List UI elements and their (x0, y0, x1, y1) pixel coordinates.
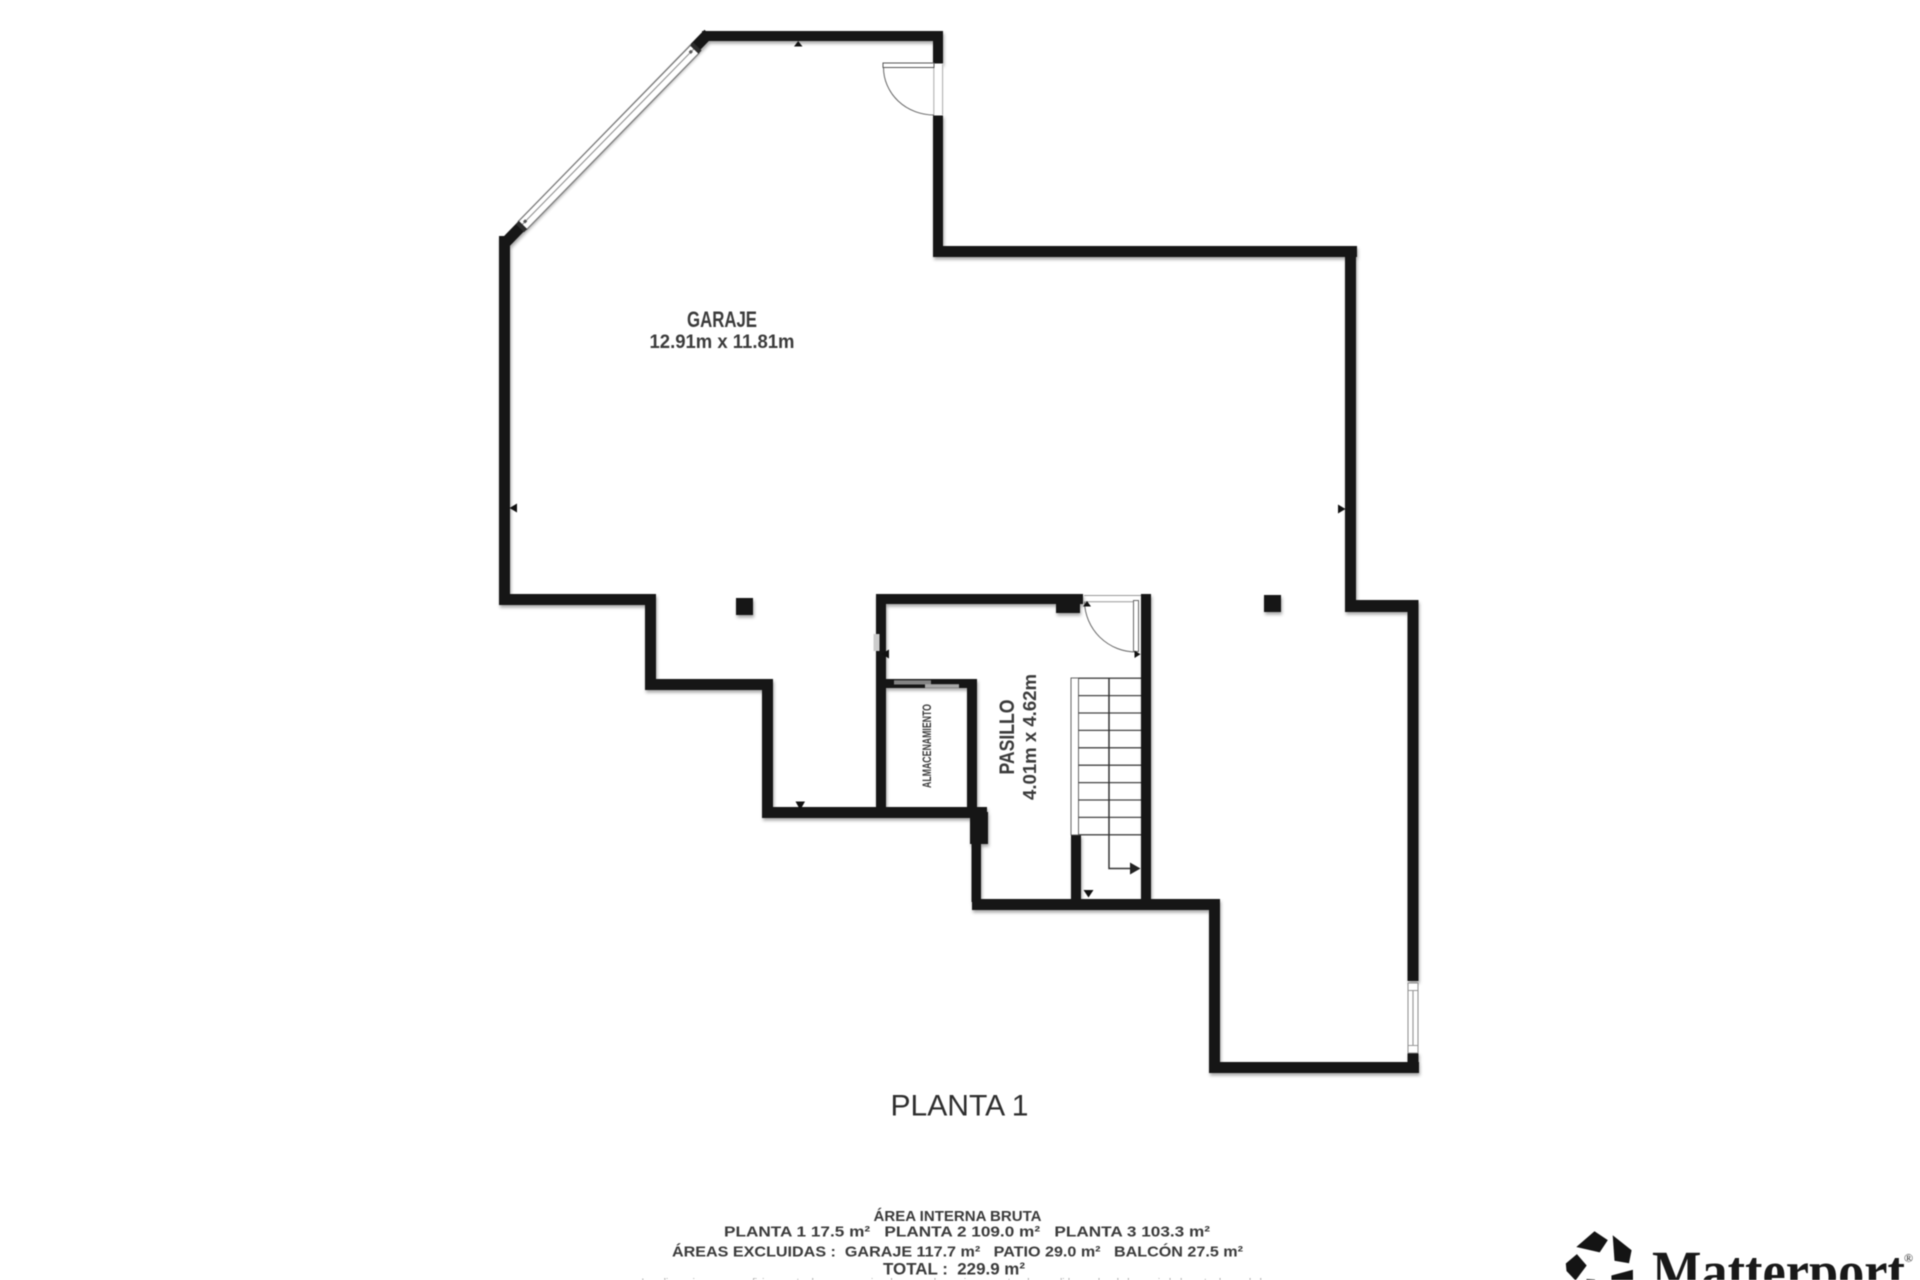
svg-text:PLANTA 1: PLANTA 1 (891, 1090, 1029, 1123)
svg-text:GARAJE: GARAJE (687, 307, 757, 332)
svg-text:4.01m x 4.62m: 4.01m x 4.62m (1020, 674, 1040, 800)
svg-text:PLANTA 1 17.5 m² PLANTA 2 10: PLANTA 1 17.5 m² PLANTA 2 109.0 m² PLANT… (724, 1224, 1210, 1241)
svg-text:ÁREA INTERNA BRUTA: ÁREA INTERNA BRUTA (874, 1208, 1042, 1225)
svg-text:®: ® (1904, 1251, 1913, 1265)
svg-text:ÁREAS EXCLUIDAS : GARAJE 117.: ÁREAS EXCLUIDAS : GARAJE 117.7 m² PATIO … (672, 1243, 1243, 1261)
svg-text:12.91m x 11.81m: 12.91m x 11.81m (650, 331, 795, 353)
svg-text:ALMACENAMIENTO: ALMACENAMIENTO (920, 704, 934, 788)
svg-text:PASILLO: PASILLO (996, 700, 1019, 775)
svg-text:Matterport: Matterport (1652, 1239, 1906, 1280)
svg-text:TOTAL : 229.9 m²: TOTAL : 229.9 m² (883, 1261, 1026, 1279)
